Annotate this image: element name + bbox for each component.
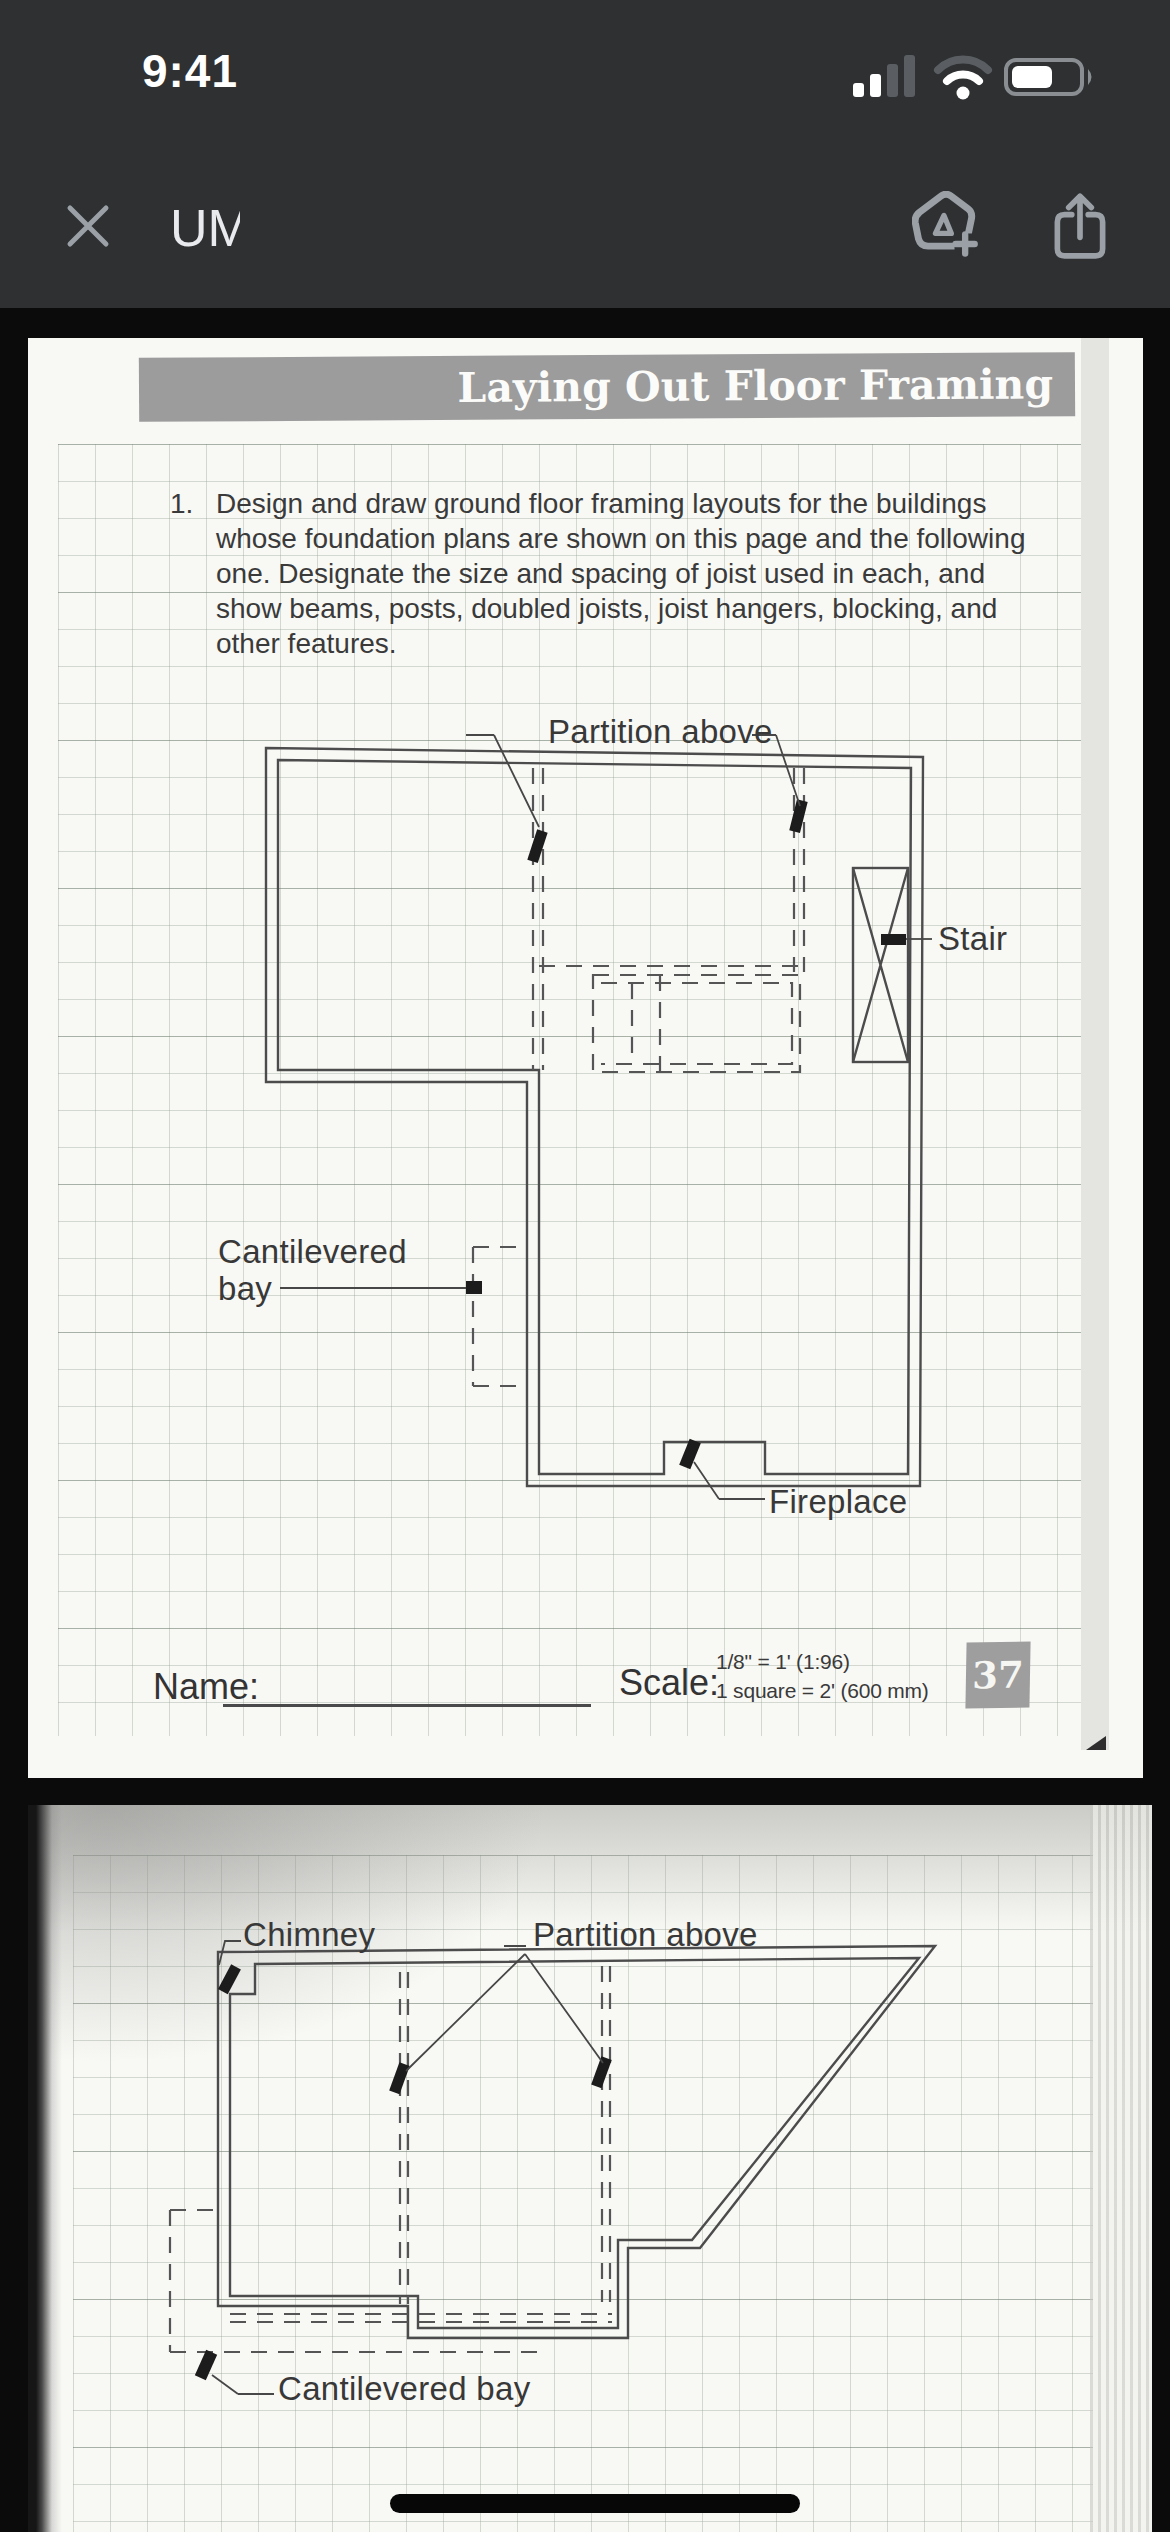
wifi-icon xyxy=(933,54,993,100)
partition-dashed-bottom xyxy=(230,2314,612,2322)
outer-wall xyxy=(218,1946,935,2338)
outer-wall xyxy=(266,748,923,1486)
name-label: Name: xyxy=(153,1666,259,1708)
label-partition-above: Partition above xyxy=(533,1917,758,1953)
label-chimney: Chimney xyxy=(243,1917,375,1953)
inner-wall xyxy=(230,1958,919,2328)
cantilevered-bay-dashed xyxy=(170,2210,540,2394)
floor-plan-2 xyxy=(28,1805,1152,2532)
closet-dashed-block xyxy=(539,966,800,1072)
scale-label: Scale: xyxy=(619,1662,719,1704)
partition-dashed-right xyxy=(789,768,807,972)
label-stair: Stair xyxy=(938,921,1007,957)
home-indicator[interactable] xyxy=(390,2494,800,2513)
book-binding-edge xyxy=(1081,338,1109,1750)
inner-wall xyxy=(278,760,911,1474)
scale-value-imperial: 1/8" = 1' (1:96) xyxy=(716,1650,850,1674)
label-bay: bay xyxy=(218,1271,272,1307)
share-icon xyxy=(1051,190,1109,262)
name-blank-line[interactable] xyxy=(223,1704,591,1707)
scanned-page-1: Laying Out Floor Framing 1.Design and dr… xyxy=(28,338,1143,1778)
chimney-marker xyxy=(218,1941,241,1994)
partition-dashed-right xyxy=(591,1966,612,2302)
partition-dashed-left xyxy=(527,768,547,1070)
label-cantilevered-bay: Cantilevered bay xyxy=(278,2371,530,2407)
scale-value-square: 1 square = 2' (600 mm) xyxy=(716,1679,929,1703)
fireplace-leader xyxy=(679,1439,765,1499)
page-number-badge: 37 xyxy=(965,1641,1030,1708)
share-button[interactable] xyxy=(1040,184,1120,268)
document-title: UMESCANON_Dept o... xyxy=(170,196,240,260)
close-icon xyxy=(65,202,111,250)
phone-screen: 9:41 UMESCANON_Dept o... xyxy=(0,0,1170,2532)
battery-icon xyxy=(1004,56,1098,98)
label-fireplace: Fireplace xyxy=(769,1484,907,1520)
top-chrome: 9:41 UMESCANON_Dept o... xyxy=(0,0,1170,308)
status-time: 9:41 xyxy=(110,44,270,98)
label-partition-above: Partition above xyxy=(548,714,773,750)
partition-dashed-left xyxy=(389,1972,410,2304)
close-button[interactable] xyxy=(58,196,118,256)
markup-pen-plus-icon xyxy=(912,191,978,261)
scanned-page-2: Chimney Partition above Cantilevered bay xyxy=(28,1805,1152,2532)
label-cantilevered: Cantilevered xyxy=(218,1234,407,1270)
partition-leaders xyxy=(406,1946,603,2071)
page-curl-mark xyxy=(1086,1736,1106,1750)
stair-well xyxy=(853,868,932,1062)
cellular-signal-icon xyxy=(853,52,927,98)
floor-plan-1 xyxy=(28,338,1143,1778)
markup-button[interactable] xyxy=(905,184,985,268)
